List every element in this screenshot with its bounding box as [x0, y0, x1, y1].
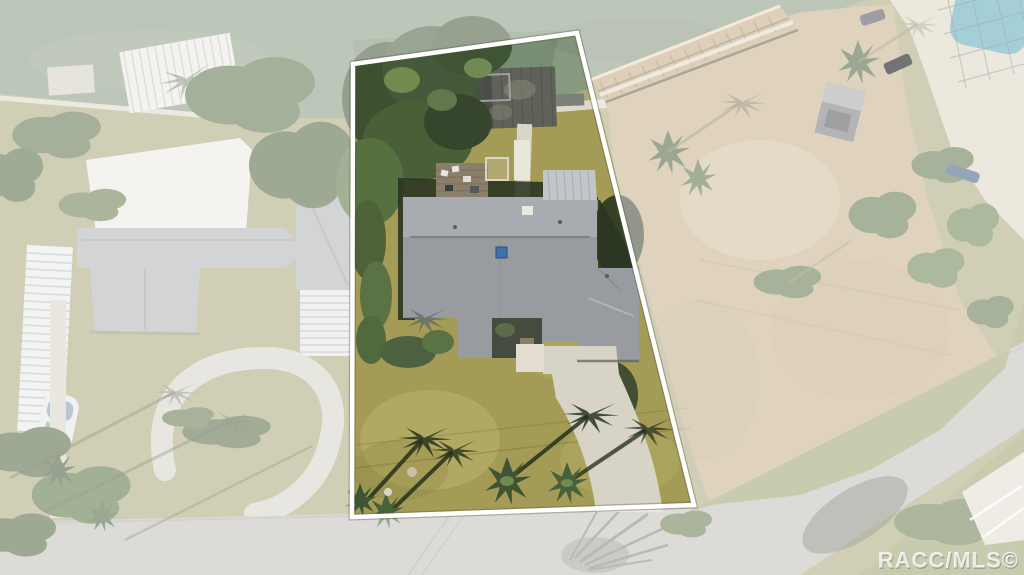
- watermark: RACC/MLS© RACC/MLS©: [878, 548, 1020, 575]
- watermark-text: RACC/MLS©: [878, 548, 1019, 573]
- wash-overlay: [0, 0, 1024, 575]
- aerial-property-photo: RACC/MLS© RACC/MLS©: [0, 0, 1024, 575]
